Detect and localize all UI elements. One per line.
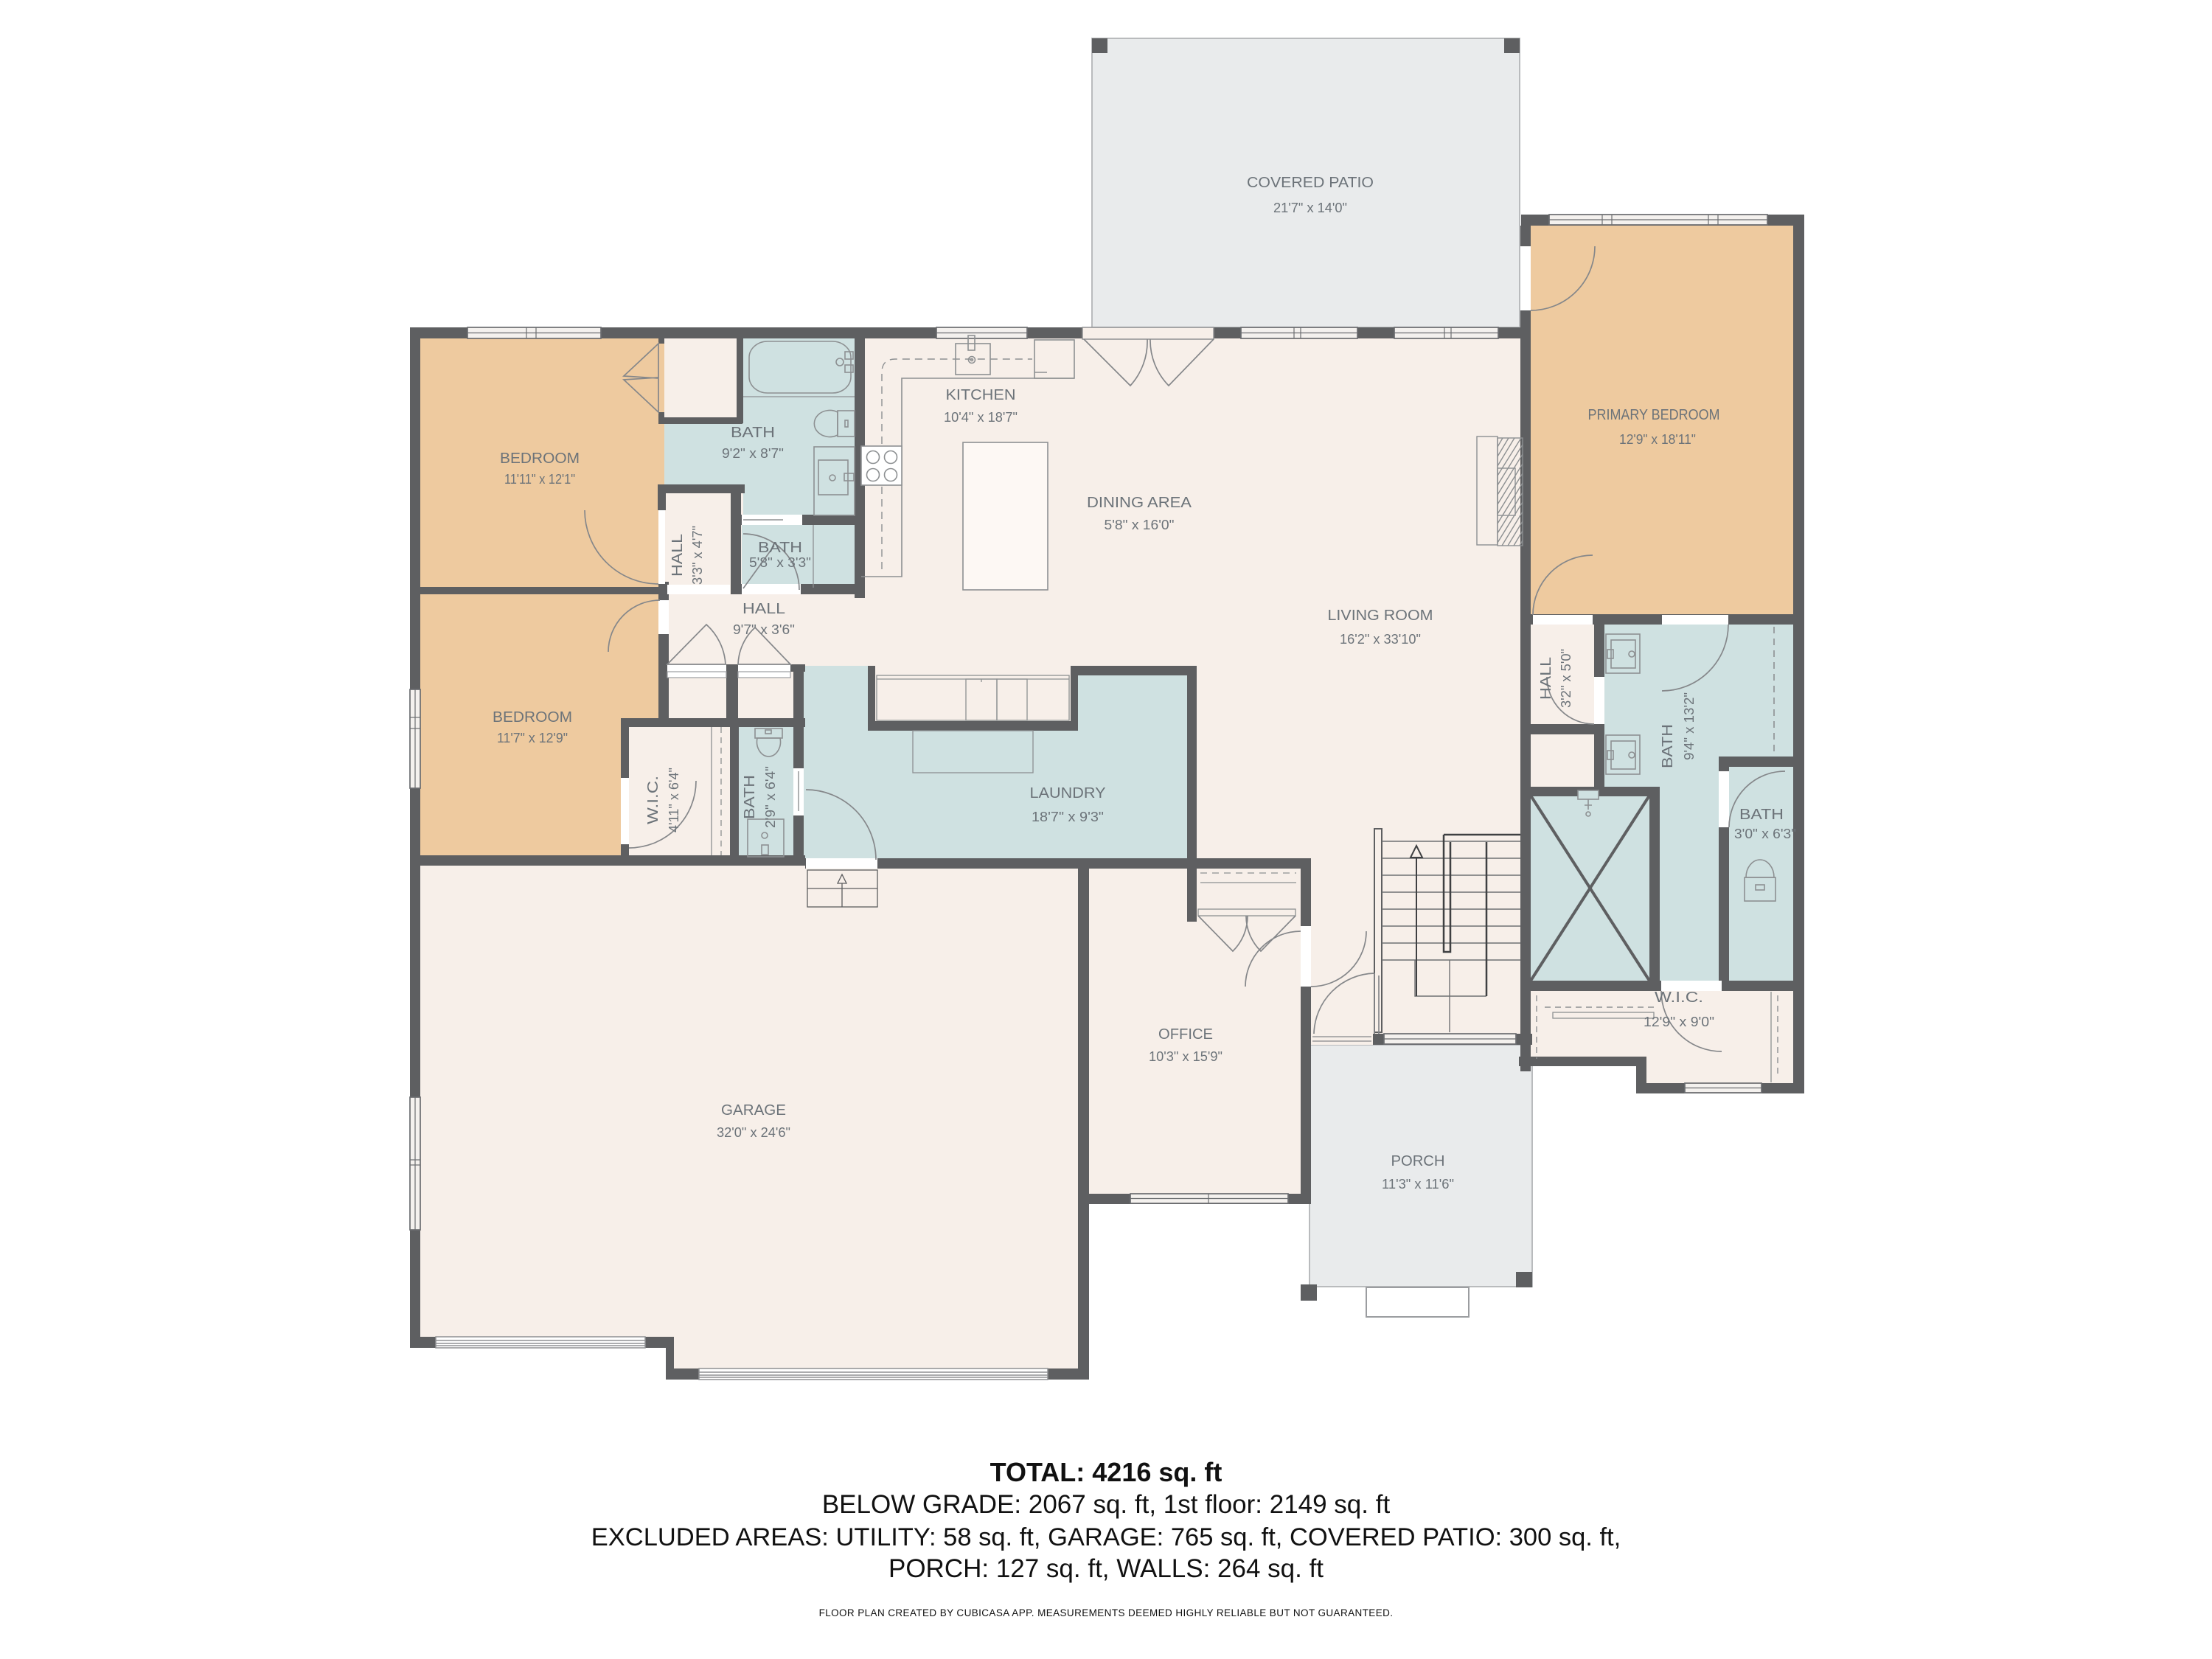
svg-text:GARAGE: GARAGE bbox=[721, 1102, 786, 1119]
svg-text:BATH: BATH bbox=[1739, 807, 1784, 823]
svg-text:LAUNDRY: LAUNDRY bbox=[1030, 785, 1106, 801]
svg-text:BEDROOM: BEDROOM bbox=[500, 451, 580, 467]
svg-text:COVERED PATIO: COVERED PATIO bbox=[1247, 175, 1374, 191]
svg-text:11'11" x 12'1": 11'11" x 12'1" bbox=[504, 472, 575, 487]
svg-text:16'2" x 33'10": 16'2" x 33'10" bbox=[1340, 632, 1421, 647]
svg-text:W.I.C.: W.I.C. bbox=[645, 776, 661, 824]
svg-text:3'2" x 5'0": 3'2" x 5'0" bbox=[1559, 649, 1573, 708]
svg-text:BATH: BATH bbox=[742, 775, 758, 819]
svg-text:BEDROOM: BEDROOM bbox=[493, 709, 572, 726]
svg-text:DINING AREA: DINING AREA bbox=[1087, 495, 1192, 511]
svg-text:PRIMARY BEDROOM: PRIMARY BEDROOM bbox=[1588, 407, 1720, 423]
svg-text:HALL: HALL bbox=[669, 534, 686, 577]
svg-text:LIVING ROOM: LIVING ROOM bbox=[1328, 608, 1433, 624]
svg-text:BATH: BATH bbox=[1660, 724, 1676, 768]
svg-text:32'0" x 24'6": 32'0" x 24'6" bbox=[717, 1125, 790, 1140]
svg-text:5'8" x 16'0": 5'8" x 16'0" bbox=[1105, 518, 1175, 532]
svg-text:HALL: HALL bbox=[742, 601, 785, 617]
svg-text:PORCH: 127 sq. ft, WALLS: 264: PORCH: 127 sq. ft, WALLS: 264 sq. ft bbox=[888, 1554, 1324, 1583]
svg-text:KITCHEN: KITCHEN bbox=[946, 387, 1016, 403]
svg-text:11'3" x 11'6": 11'3" x 11'6" bbox=[1382, 1177, 1454, 1192]
svg-text:HALL: HALL bbox=[1538, 657, 1554, 700]
svg-text:OFFICE: OFFICE bbox=[1158, 1026, 1213, 1043]
svg-text:3'3" x 4'7": 3'3" x 4'7" bbox=[690, 526, 705, 585]
svg-text:5'8" x 3'3": 5'8" x 3'3" bbox=[749, 555, 811, 570]
svg-text:EXCLUDED AREAS: UTILITY: 58 sq: EXCLUDED AREAS: UTILITY: 58 sq. ft, GARA… bbox=[591, 1523, 1621, 1551]
svg-text:BATH: BATH bbox=[731, 425, 775, 441]
svg-text:FLOOR PLAN CREATED BY CUBICASA: FLOOR PLAN CREATED BY CUBICASA APP. MEAS… bbox=[819, 1607, 1394, 1618]
svg-text:BATH: BATH bbox=[758, 540, 802, 556]
svg-text:9'4" x 13'2": 9'4" x 13'2" bbox=[1682, 692, 1697, 760]
svg-text:9'2" x 8'7": 9'2" x 8'7" bbox=[722, 446, 784, 461]
svg-text:10'3" x 15'9": 10'3" x 15'9" bbox=[1149, 1049, 1222, 1064]
svg-text:9'7" x 3'6": 9'7" x 3'6" bbox=[733, 622, 795, 637]
svg-text:18'7" x 9'3": 18'7" x 9'3" bbox=[1032, 810, 1104, 824]
svg-text:10'4" x 18'7": 10'4" x 18'7" bbox=[944, 410, 1018, 425]
svg-text:BELOW GRADE: 2067 sq. ft, 1st: BELOW GRADE: 2067 sq. ft, 1st floor: 214… bbox=[822, 1490, 1391, 1519]
svg-text:3'0" x 6'3": 3'0" x 6'3" bbox=[1734, 827, 1796, 841]
svg-text:PORCH: PORCH bbox=[1391, 1153, 1445, 1169]
svg-text:2'9" x 6'4": 2'9" x 6'4" bbox=[763, 766, 778, 828]
svg-text:4'11" x 6'4": 4'11" x 6'4" bbox=[667, 768, 681, 832]
svg-text:11'7" x 12'9": 11'7" x 12'9" bbox=[497, 731, 568, 745]
svg-text:TOTAL: 4216 sq. ft: TOTAL: 4216 sq. ft bbox=[990, 1457, 1222, 1487]
svg-text:12'9" x 9'0": 12'9" x 9'0" bbox=[1644, 1015, 1714, 1029]
svg-text:W.I.C.: W.I.C. bbox=[1655, 990, 1703, 1006]
svg-text:12'9" x 18'11": 12'9" x 18'11" bbox=[1619, 432, 1696, 447]
svg-text:21'7" x 14'0": 21'7" x 14'0" bbox=[1273, 201, 1347, 215]
